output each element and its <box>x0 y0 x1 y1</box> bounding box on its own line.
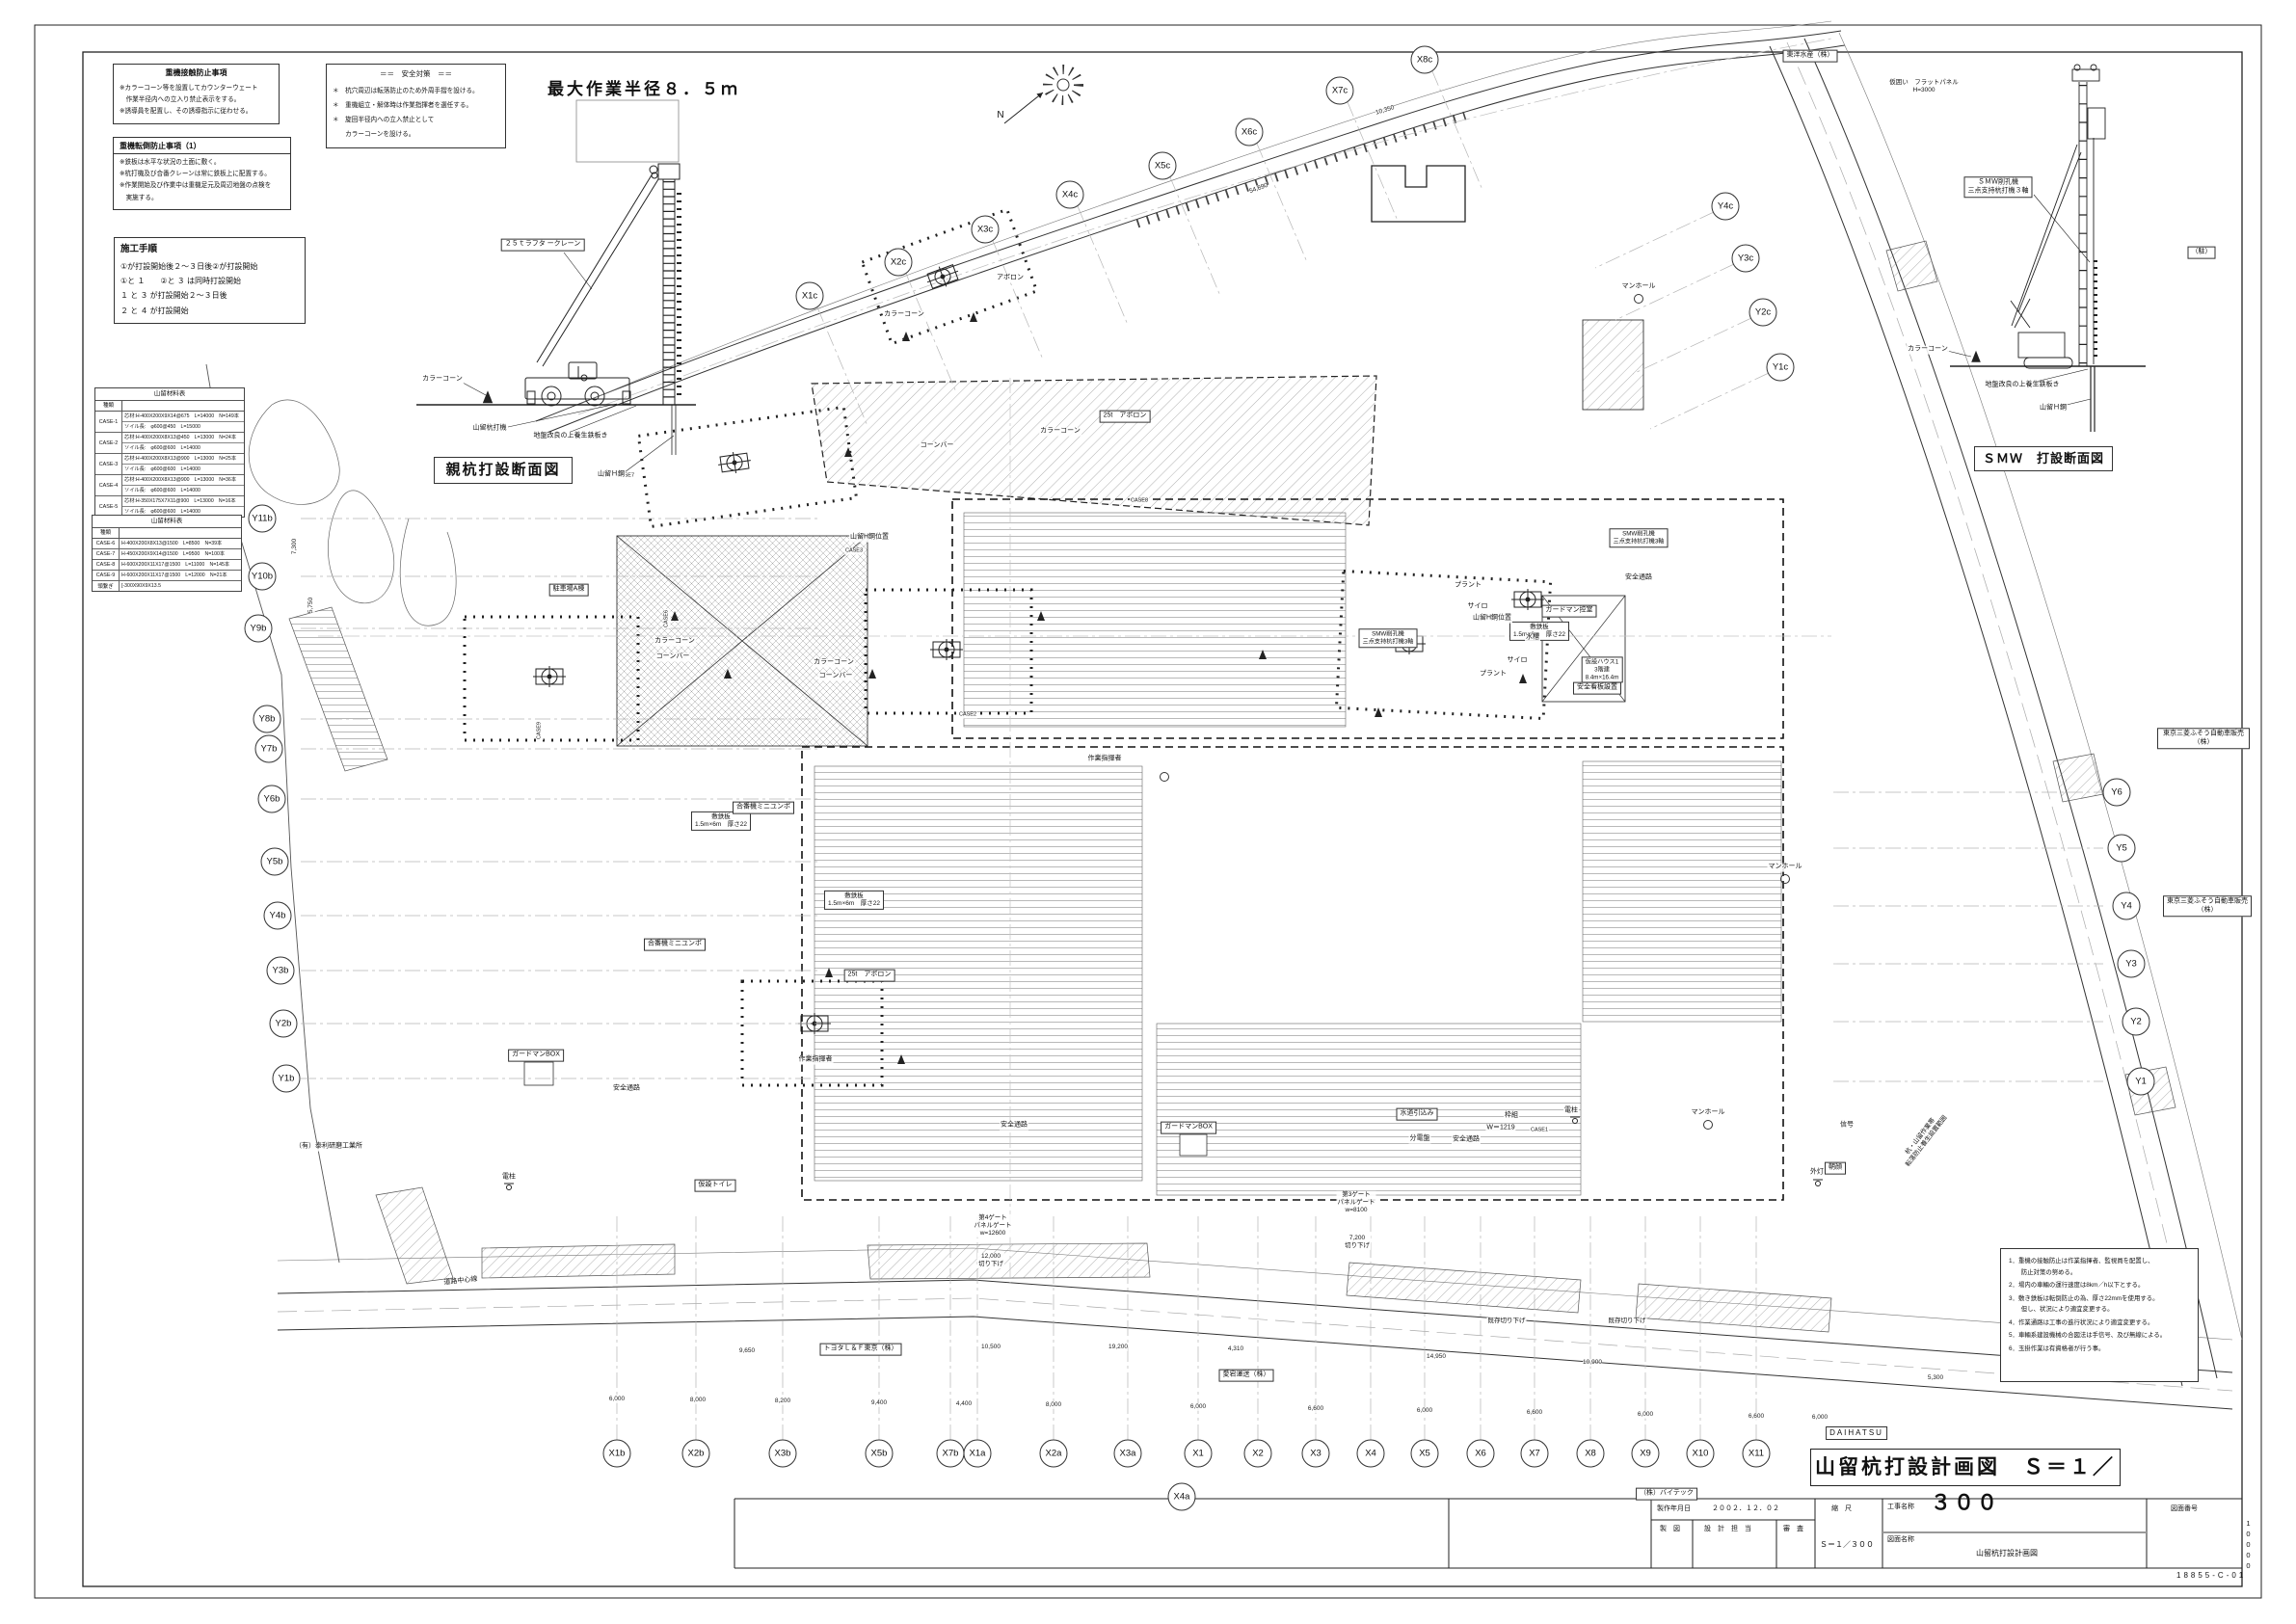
plan-label: 7,200 切り下げ <box>1344 1235 1371 1250</box>
drawing-sheet: 重機接触防止事項 ※カラーコーン等を設置してカウンターウェート 作業半径内への立… <box>0 0 2296 1624</box>
grid-bubble: X2a <box>1040 1440 1068 1468</box>
dimension-label: 9,400 <box>871 1399 887 1407</box>
grid-bubble: Y6 <box>2103 779 2131 807</box>
note-title: 施工手順 <box>115 238 305 256</box>
plan-label: 第3ゲート パネルゲート w=8100 <box>1337 1191 1376 1214</box>
table-title: 山留材料表 <box>95 388 244 401</box>
dimension-label: 10,900 <box>1583 1359 1602 1367</box>
spec-cell: H-600X200X11X17@1500 L=12000 N=21本 <box>120 571 241 580</box>
general-notes-box: 1．重機の接触防止は作業指揮者、監視員を配置し、 防止対策の努める。2．場内の車… <box>2000 1248 2199 1382</box>
grid-bubble: X6c <box>1236 119 1264 146</box>
table-row: CASE-8 H-600X200X11X17@1500 L=11000 N=14… <box>93 560 241 571</box>
plan-label: 東京三菱ふそう自動車販売（株） <box>2163 895 2252 917</box>
plan-label: 信号 <box>1839 1122 1855 1131</box>
plan-label: コーンバー <box>655 653 691 662</box>
spec-cell: H-600X200X11X17@1500 L=11000 N=145本 <box>120 560 241 570</box>
note-line: ※誘導員を配置し、その誘導指示に従わせる。 <box>120 106 273 118</box>
plan-label: 作業指揮者 <box>1087 756 1123 764</box>
case-cell: CASE-2 <box>95 433 122 453</box>
plan-label: 敷鉄板 1.5m×6m 厚さ22 <box>691 812 751 831</box>
plan-label: 電柱 <box>501 1174 517 1183</box>
plan-label: プラント <box>1454 582 1482 591</box>
plan-label: サイロ <box>1507 657 1529 666</box>
dimension-label: 6,000 <box>1812 1414 1828 1422</box>
table-row: CASE-9 H-600X200X11X17@1500 L=12000 N=21… <box>93 571 241 581</box>
plan-label: 安全看板設置 <box>1573 682 1621 695</box>
max-working-radius-label: 最大作業半径８．５ｍ <box>547 75 740 99</box>
grid-bubble: X5 <box>1411 1440 1439 1468</box>
plan-label: N <box>996 110 1004 122</box>
note-line: ＊ 旋回半径内への立入禁止として <box>333 113 499 127</box>
note-line: ＊ 杭穴周辺は転落防止のため外周手摺を設ける。 <box>333 84 499 98</box>
plan-label: DAIHATSU <box>1826 1426 1887 1440</box>
note-line: 実施する。 <box>120 193 284 204</box>
dimension-label: 6,000 <box>1417 1407 1432 1415</box>
case-cell: CASE-7 <box>93 549 120 559</box>
grid-bubble: X2c <box>885 249 913 277</box>
plan-label: 既存切り下げ <box>1608 1318 1647 1325</box>
plan-label: 山留Ｈ鋼 <box>2039 405 2068 413</box>
case-cell: CASE-8 <box>93 560 120 570</box>
spec-cell: 芯材:H-400X200X8X13@900 L=13000 N=25本 ソイル長… <box>122 454 244 474</box>
dimension-label: 9,650 <box>739 1347 755 1355</box>
scale-value: Ｓ＝１／３００ <box>1820 1539 1874 1550</box>
plan-label: カラーコーン <box>1907 346 1949 355</box>
note-line: カラーコーンを設ける。 <box>333 127 499 142</box>
note-contact-prevention: 重機接触防止事項 ※カラーコーン等を設置してカウンターウェート 作業半径内への立… <box>113 64 280 124</box>
review-label: 審 査 <box>1783 1524 1803 1533</box>
dimension-label: 4,310 <box>1228 1345 1243 1353</box>
grid-bubble: X8 <box>1577 1440 1605 1468</box>
plan-label: トヨタＬ＆Ｆ東京（株） <box>820 1344 902 1356</box>
plan-label: 25t アボロン <box>844 970 895 982</box>
case-cell: 頭繋ぎ <box>93 581 120 591</box>
general-note: 5．車輛系建設機械の合図法は手信号、及び無線による。 <box>2009 1330 2190 1342</box>
case-cell: CASE-4 <box>95 475 122 495</box>
dimension-label: 19,200 <box>1108 1344 1128 1351</box>
plan-label: CASE8 <box>1130 498 1149 505</box>
spec-cell: H-400X200X8X13@1500 L=8500 N=39本 <box>120 539 241 548</box>
table-row: CASE-4 芯材:H-400X200X8X13@900 L=13000 N=3… <box>95 475 244 496</box>
table-row: CASE-7 H-450X200X9X14@1500 L=9500 N=100本 <box>93 549 241 560</box>
grid-bubble: X7 <box>1521 1440 1549 1468</box>
material-table-1: 山留材料表 種類 CASE-1 芯材:H-400X200X9X14@675 L=… <box>94 387 245 518</box>
grid-bubble: Y3 <box>2118 950 2146 978</box>
spec-cell: 芯材:H-350X175X7X11@900 L=13000 N=16本 ソイル長… <box>122 496 244 517</box>
plan-label: ガードマンBOX <box>508 1050 564 1062</box>
note-line: ①と １ ②と ３ は同時打設開始 <box>120 274 299 288</box>
plan-label: カラーコーン <box>421 376 464 385</box>
plan-label: 水槽 <box>1525 634 1540 643</box>
grid-bubble: X6 <box>1467 1440 1495 1468</box>
plan-label: 作業指揮者 <box>798 1056 834 1065</box>
note-lines: ①が打設開始後２～３日後②が打設開始①と １ ②と ３ は同時打設開始１ と ３… <box>115 256 305 323</box>
plan-label: アボロン <box>996 275 1025 283</box>
note-overturn-prevention: 重機転倒防止事項（1） ※鉄板は水平な状況の土面に敷く。※杭打機及び合番クレーン… <box>113 137 291 210</box>
plan-label: 朝顔 <box>1825 1162 1846 1175</box>
plan-label: マンホール <box>1621 283 1657 292</box>
note-title: 重機転倒防止事項（1） <box>114 138 290 154</box>
grid-bubble: Y9b <box>245 615 273 643</box>
dimension-label: 6,000 <box>609 1396 625 1403</box>
dimension-label: 14,950 <box>1427 1353 1446 1361</box>
grid-bubble: Y5 <box>2108 835 2136 863</box>
grid-bubble: Y8b <box>254 706 281 733</box>
table-title: 山留材料表 <box>93 516 241 528</box>
plan-label: （株）バイテック <box>1636 1488 1697 1501</box>
grid-bubble: X3a <box>1114 1440 1142 1468</box>
plan-label: W＝1219 <box>1485 1125 1515 1133</box>
plan-label: 分電盤 <box>1409 1135 1431 1144</box>
note-safety-measures: ＝＝ 安全対策 ＝＝ ＊ 杭穴周辺は転落防止のため外周手摺を設ける。＊ 重機組立… <box>326 64 506 148</box>
smw-section-caption: ＳＭＷ 打設断面図 <box>1974 446 2113 471</box>
dimension-label: 6,000 <box>1638 1411 1653 1419</box>
plan-label: 合番機ミニユンボ <box>644 939 706 951</box>
grid-bubble: Y1 <box>2127 1068 2155 1096</box>
dimension-label: 8,000 <box>690 1397 706 1404</box>
plan-label: 仮囲い フラットパネル H=3000 <box>1888 79 1960 94</box>
grid-bubble: Y3b <box>267 957 295 985</box>
general-note: 3．敷き鉄板は転倒防止の為、厚さ22mmを使用する。 但し、状況により適宜変更す… <box>2009 1293 2190 1316</box>
grid-bubble: Y1c <box>1767 354 1795 382</box>
grid-bubble: X9 <box>1632 1440 1660 1468</box>
plan-label: 第4ゲート パネルゲート w=12600 <box>974 1214 1013 1238</box>
material-table-2: 山留材料表 種類 CASE-6 H-400X200X8X13@1500 L=85… <box>92 515 242 592</box>
table-body: CASE-6 H-400X200X8X13@1500 L=8500 N=39本 … <box>93 539 241 591</box>
grid-bubble: X3 <box>1302 1440 1330 1468</box>
note-procedure: 施工手順 ①が打設開始後２～３日後②が打設開始①と １ ②と ３ は同時打設開始… <box>114 237 306 324</box>
grid-bubble: X8c <box>1411 46 1439 74</box>
plan-label: 東洋水産（株） <box>1783 50 1838 63</box>
general-note: 4．作業通路は工事の進行状況により適宜変更する。 <box>2009 1318 2190 1329</box>
case-cell: CASE-5 <box>95 496 122 517</box>
plan-label: 安全通路 <box>1452 1136 1481 1145</box>
note-line: １ と ３ が打設開始２～３日後 <box>120 288 299 303</box>
grid-bubble: X7b <box>937 1440 965 1468</box>
plan-label: 安全通路 <box>612 1085 641 1094</box>
plan-label: 山留杭打機 <box>472 425 508 434</box>
plan-label: 安全通路 <box>1000 1122 1028 1131</box>
plan-label: ガードマン控室 <box>1542 605 1597 618</box>
table-row: CASE-1 芯材:H-400X200X9X14@675 L=14000 N=1… <box>95 412 244 433</box>
grid-bubble: Y3c <box>1732 245 1760 273</box>
plan-label: カラーコーン <box>654 638 696 647</box>
date-label: 製作年月日 <box>1657 1504 1691 1513</box>
note-line: ①が打設開始後２～３日後②が打設開始 <box>120 259 299 274</box>
table-row: CASE-6 H-400X200X8X13@1500 L=8500 N=39本 <box>93 539 241 549</box>
spec-cell: H-450X200X9X14@1500 L=9500 N=100本 <box>120 549 241 559</box>
plan-label: 枠組 <box>1504 1112 1519 1121</box>
plan-label: SMW削孔機 三点支持杭打機3軸 <box>1359 628 1418 648</box>
grid-bubble: X5b <box>866 1440 894 1468</box>
general-note: 6．玉掛作業は有資格者が行う事。 <box>2009 1344 2190 1355</box>
design-label: 設 計 担 当 <box>1704 1524 1751 1533</box>
note-line: ※杭打機及び合番クレーンは常に鉄板上に配置する。 <box>120 169 284 180</box>
grid-bubble: Y4b <box>264 902 292 930</box>
dimension-label: 5,300 <box>1928 1374 1943 1382</box>
grid-bubble: X2b <box>682 1440 710 1468</box>
grid-bubble: Y2c <box>1749 299 1777 327</box>
note-line: ※カラーコーン等を設置してカウンターウェート <box>120 83 273 94</box>
grid-bubble: X11 <box>1743 1440 1771 1468</box>
grid-bubble: Y1b <box>273 1065 301 1093</box>
grid-bubble: Y4c <box>1712 193 1740 221</box>
grid-bubble: Y11b <box>249 505 277 533</box>
dimension-label: 8,200 <box>775 1398 790 1405</box>
grid-bubble: X3b <box>769 1440 797 1468</box>
note-line: 作業半径内への立入り禁止表示をする。 <box>120 94 273 106</box>
note-lines: ※鉄板は水平な状況の土面に敷く。※杭打機及び合番クレーンは常に鉄板上に配置する。… <box>114 154 290 209</box>
plan-label: マンホール <box>1691 1109 1726 1118</box>
note-line: ２ と ４ が打設開始 <box>120 304 299 318</box>
grid-bubble: Y10b <box>249 563 277 591</box>
note-line: ※作業開始及び作業中は重機足元及周辺地盤の点検を <box>120 180 284 192</box>
dimension-label: 6,000 <box>1190 1403 1206 1411</box>
spec-cell: 芯材:H-400X200X8X13@900 L=13000 N=36本 ソイル長… <box>122 475 244 495</box>
plan-label: 外灯 <box>1809 1169 1825 1178</box>
grid-bubble: X5c <box>1149 152 1177 180</box>
plan-linework <box>0 0 2296 1624</box>
table-row: CASE-5 芯材:H-350X175X7X11@900 L=13000 N=1… <box>95 496 244 517</box>
dimension-label: 6,600 <box>1308 1405 1323 1413</box>
date-value: ２００２．１２．０２ <box>1712 1504 1779 1513</box>
note-title: 重機接触防止事項 <box>114 65 279 80</box>
parent-pile-section-caption: 親杭打設断面図 <box>434 457 573 484</box>
plan-label: （有）泰利研磨工業所 <box>294 1143 363 1152</box>
plan-label: 駐車場A棟 <box>549 584 589 597</box>
plan-label: CASE2 <box>958 712 977 719</box>
note-lines: ＊ 杭穴周辺は転落防止のため外周手摺を設ける。＊ 重機組立・解体時は作業指揮者を… <box>327 81 505 147</box>
grid-bubble: X4 <box>1357 1440 1385 1468</box>
plan-label: 山留Ｈ鋼 <box>597 471 626 480</box>
spec-cell: [-300X90X9X13.5 <box>120 581 241 591</box>
spec-cell: 芯材:H-400X200X8X13@450 L=13000 N=24本 ソイル長… <box>122 433 244 453</box>
plan-label: ＳＭＷ削孔機 三点支持杭打機３軸 <box>1964 176 2033 198</box>
grid-bubble: X1 <box>1185 1440 1213 1468</box>
plan-label: 山留H鋼位置 <box>1472 615 1512 624</box>
grid-bubble: Y7b <box>255 735 283 763</box>
plan-label: 愛宕運送（株） <box>1219 1370 1274 1382</box>
plan-label: 安全通路 <box>1624 574 1653 583</box>
dimension-label: 6,600 <box>1527 1409 1542 1417</box>
drawing-name-value: 山留杭打設計画図 <box>1976 1548 2038 1558</box>
plan-label: マンホール <box>1768 864 1803 872</box>
table-row: 頭繋ぎ [-300X90X9X13.5 <box>93 581 241 591</box>
plan-label: 合番機ミニユンボ <box>733 802 794 814</box>
dimension-label: 5,750 <box>307 598 315 613</box>
table-row: CASE-2 芯材:H-400X200X8X13@450 L=13000 N=2… <box>95 433 244 454</box>
dimension-label: 6,600 <box>1749 1413 1764 1421</box>
plan-label: カラーコーン <box>1039 428 1081 437</box>
dimension-label: 8,000 <box>1046 1401 1061 1409</box>
plan-label: CASE3 <box>844 548 864 555</box>
grid-bubble: X4a <box>1168 1483 1196 1511</box>
note-title: ＝＝ 安全対策 ＝＝ <box>327 65 505 81</box>
scale-label: 縮 尺 <box>1831 1504 1852 1513</box>
plan-label: 山留H鋼位置 <box>849 534 890 543</box>
grid-bubble: Y5b <box>261 848 289 876</box>
drawing-number-label: 図面番号 <box>2171 1504 2198 1513</box>
plan-label: カラーコーン <box>813 659 855 668</box>
plan-label: ２５ｔラフタ ークレーン <box>501 239 585 252</box>
plan-label: 仮設トイレ <box>695 1180 736 1192</box>
drawing-main-title: 山留杭打設計画図 Ｓ＝１／３００ <box>1810 1449 2121 1486</box>
grid-bubble: X7c <box>1326 77 1354 105</box>
drafting-label: 製 図 <box>1660 1524 1680 1533</box>
case-cell: CASE-9 <box>93 571 120 580</box>
plan-label: プラント <box>1479 671 1508 679</box>
plan-label: CASE6 <box>664 609 671 628</box>
grid-bubble: X1b <box>603 1440 631 1468</box>
case-cell: CASE-1 <box>95 412 122 432</box>
grid-bubble: X1c <box>796 282 824 310</box>
plan-label: 水道引込み <box>1397 1108 1438 1121</box>
grid-bubble: X10 <box>1687 1440 1715 1468</box>
plan-label: 敷鉄板 1.5m×6m 厚さ22 <box>824 891 884 910</box>
plan-label: 25t アボロン <box>1100 411 1151 423</box>
note-line: ＊ 重機組立・解体時は作業指揮者を選任する。 <box>333 98 499 113</box>
grid-bubble: Y4 <box>2113 892 2141 920</box>
plan-label: 地盤改良の上養生鉄板き <box>1985 382 2061 390</box>
grid-bubble: Y6b <box>258 785 286 813</box>
case-cell: CASE-6 <box>93 539 120 548</box>
plan-label: ガードマンBOX <box>1161 1122 1216 1134</box>
grid-bubble: Y2 <box>2122 1008 2150 1036</box>
plan-label: 地盤改良の上養生鉄板き <box>533 433 609 441</box>
dimension-label: 7,300 <box>291 539 299 554</box>
dimension-label: 4,400 <box>956 1400 972 1408</box>
table-row: CASE-3 芯材:H-400X200X8X13@900 L=13000 N=2… <box>95 454 244 475</box>
plan-label: SMW削孔機 三点支持杭打機3軸 <box>1610 528 1669 547</box>
plan-label: CASE9 <box>537 721 544 740</box>
plan-label: CASE1 <box>1530 1128 1549 1134</box>
plan-label: サイロ <box>1467 603 1489 612</box>
table-type-header: 種類 <box>95 401 122 411</box>
grid-bubble: Y2b <box>270 1010 298 1038</box>
plan-label: 既存切り下げ <box>1487 1318 1527 1325</box>
grid-bubble: X1a <box>964 1440 992 1468</box>
grid-bubble: X3c <box>972 216 1000 244</box>
plan-label: コーンバー <box>920 442 955 451</box>
note-line: ※鉄板は水平な状況の土面に敷く。 <box>120 157 284 169</box>
plan-label: 12,000 切り下げ <box>977 1253 1004 1268</box>
document-number: 18855-C-01 <box>2176 1571 2246 1580</box>
project-name-label: 工事名称 <box>1887 1502 1914 1511</box>
dimension-label: 10,500 <box>981 1344 1001 1351</box>
note-lines: ※カラーコーン等を設置してカウンターウェート 作業半径内への立入り禁止表示をする… <box>114 80 279 123</box>
general-note: 2．場内の車輛の運行速度は8km／h以下とする。 <box>2009 1280 2190 1291</box>
case-cell: CASE-3 <box>95 454 122 474</box>
grid-bubble: X4c <box>1056 181 1084 209</box>
plan-label: 仮設ハウス1 3階建 8.4m×16.4m <box>1582 656 1623 682</box>
table-body: CASE-1 芯材:H-400X200X9X14@675 L=14000 N=1… <box>95 412 244 517</box>
spec-cell: 芯材:H-400X200X9X14@675 L=14000 N=149本 ソイル… <box>122 412 244 432</box>
plan-label: コーンバー <box>818 673 854 681</box>
plan-label: 東京三菱ふそう自動車販売（株） <box>2157 728 2250 749</box>
plan-label: （駐） <box>2188 247 2216 259</box>
grid-bubble: X2 <box>1244 1440 1272 1468</box>
plan-label: カラーコーン <box>883 311 925 320</box>
sheet-number-vertical: 10000 <box>2244 1519 2253 1569</box>
drawing-name-label: 図面名称 <box>1887 1534 1914 1544</box>
general-note: 1．重機の接触防止は作業指揮者、監視員を配置し、 防止対策の努める。 <box>2009 1256 2190 1278</box>
table-type-header: 種類 <box>93 528 120 538</box>
plan-label: 電柱 <box>1563 1107 1579 1116</box>
